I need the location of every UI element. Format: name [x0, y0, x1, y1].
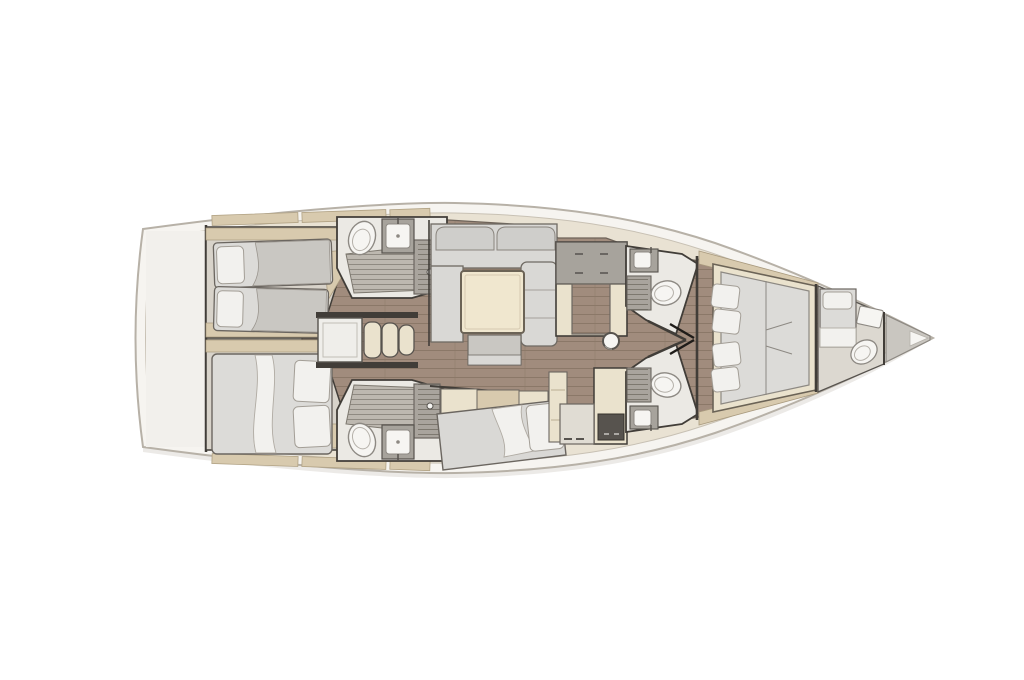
aft-starboard-sink: [382, 425, 414, 461]
master-pillow-2: [712, 308, 742, 334]
companionway-rail-top: [316, 312, 418, 318]
twin-bed-2-pillow: [217, 291, 244, 328]
companionway-platform: [318, 318, 362, 362]
floorplan-canvas: [0, 0, 1024, 680]
nav-counter-dark: [598, 414, 624, 440]
galley-counter: [556, 242, 627, 284]
companionway-step-1: [364, 322, 381, 358]
aft-starboard-cabin-shelf: [206, 340, 320, 352]
forward-starboard-sink: [630, 406, 658, 431]
forward-starboard-shower-panel: [627, 368, 651, 402]
crew-bed-pillow: [823, 292, 852, 309]
forward-port-sink: [630, 247, 658, 272]
salon-table: [461, 271, 524, 333]
sofa-chaise: [521, 262, 557, 346]
companionway-step-2: [382, 323, 398, 357]
transom-garage: [146, 231, 206, 447]
twin-bed-2-blanket: [251, 288, 326, 332]
sofa-back-cushion-1: [436, 227, 494, 250]
aft-port-sink: [382, 217, 414, 253]
master-pillow-4: [711, 366, 741, 392]
bow-locker: [886, 315, 930, 362]
twin-bed-1-blanket: [251, 240, 330, 286]
forward-port-shower-panel: [627, 276, 651, 310]
twin-bed-1-pillow: [216, 246, 244, 284]
salon-ottoman-top: [468, 355, 521, 365]
double-bed: [212, 354, 332, 454]
aft-starboard-shower-mixer: [427, 403, 433, 409]
companionway-step-3: [399, 325, 414, 355]
crew-bed-blanket: [820, 328, 856, 347]
galley-alcove-floor: [572, 284, 610, 334]
aft-starboard-head: [337, 380, 447, 461]
port-galley: [556, 242, 627, 336]
master-pillow-3: [712, 341, 742, 367]
aft-starboard-shower-panel: [414, 384, 440, 438]
double-bed-pillow-2: [293, 405, 331, 448]
sofa-left-seat: [431, 266, 463, 342]
yacht-floorplan: [0, 0, 1024, 680]
twin-bed-2: [213, 286, 328, 333]
sofa-back-cushion-2: [497, 227, 555, 250]
master-pillow-1: [711, 283, 741, 309]
companionway-rail-bottom: [316, 362, 418, 368]
double-bed-duvet-fold: [254, 355, 276, 453]
mast-post: [603, 333, 619, 349]
aft-port-cabin-shelf: [206, 228, 346, 240]
twin-bed-1: [213, 239, 332, 288]
crew-cabin: [818, 286, 884, 392]
